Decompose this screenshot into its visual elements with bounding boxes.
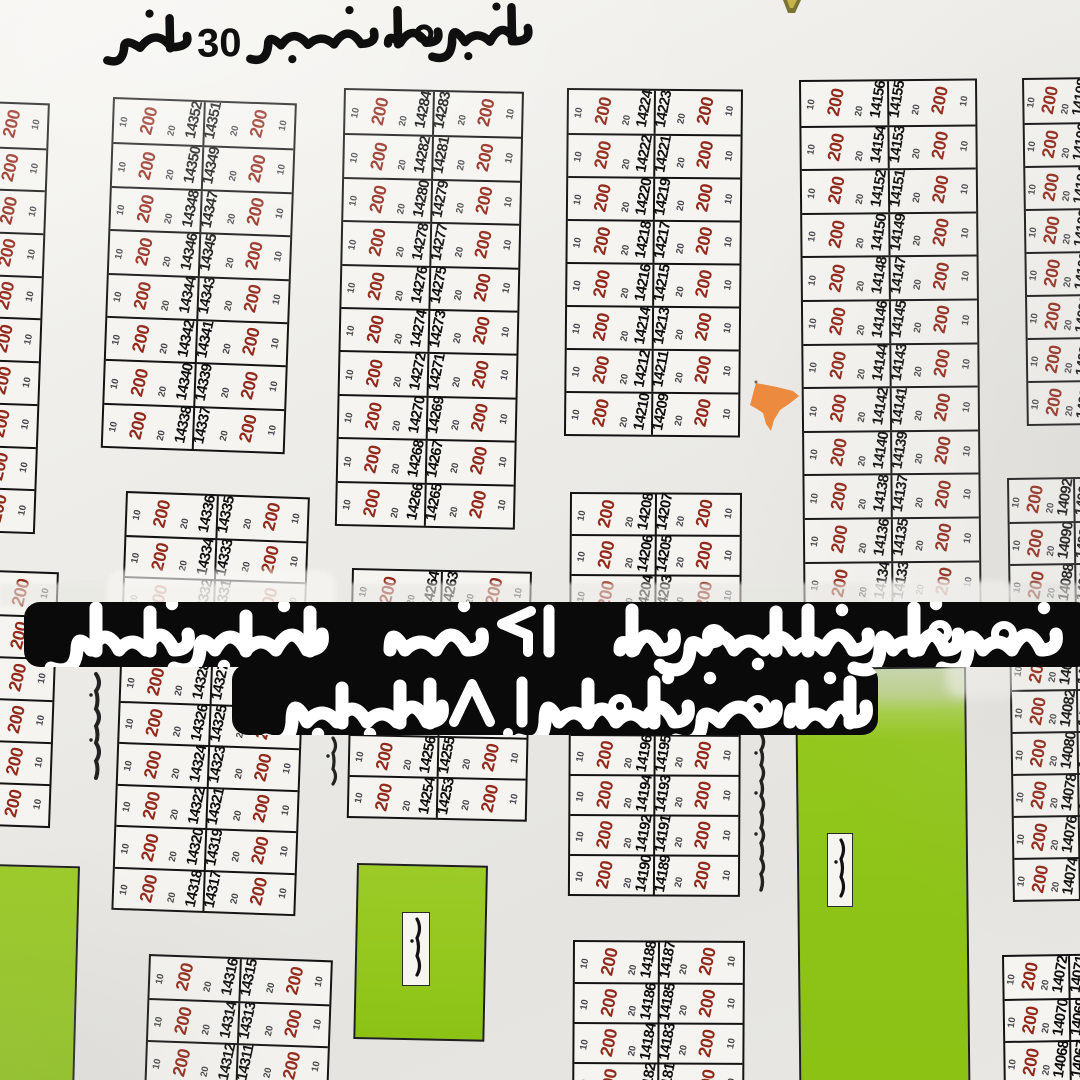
svg-text:30: 30 <box>197 21 242 66</box>
